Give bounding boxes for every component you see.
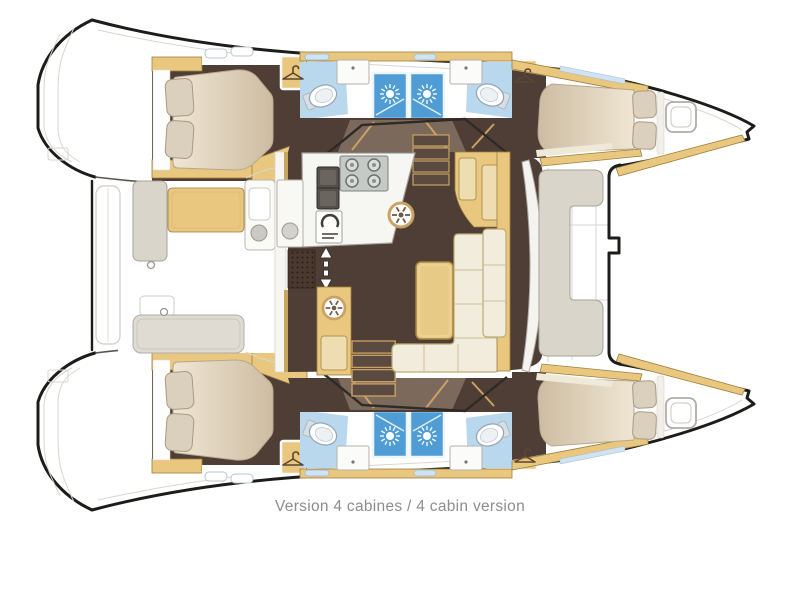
trampoline-edge: [609, 165, 620, 364]
entry-grate: [288, 250, 315, 288]
cockpit-table: [133, 315, 244, 353]
aft-wall: [284, 290, 288, 372]
saloon: [275, 135, 549, 396]
stove: [340, 156, 388, 191]
cockpit-bench: [168, 188, 244, 232]
oven: [316, 211, 342, 243]
saloon-table: [416, 262, 453, 339]
foredeck-seat: [539, 170, 603, 356]
cockpit-seat: [140, 296, 174, 316]
catamaran-floor-plan: Version 4 cabines / 4 cabin version: [0, 0, 800, 600]
helm-seat-back: [133, 181, 167, 261]
front-seat: [483, 229, 506, 337]
caption: Version 4 cabines / 4 cabin version: [275, 498, 525, 515]
floor-plan-page: Version 4 cabines / 4 cabin version: [0, 0, 800, 600]
cockpit-sink: [251, 225, 267, 241]
